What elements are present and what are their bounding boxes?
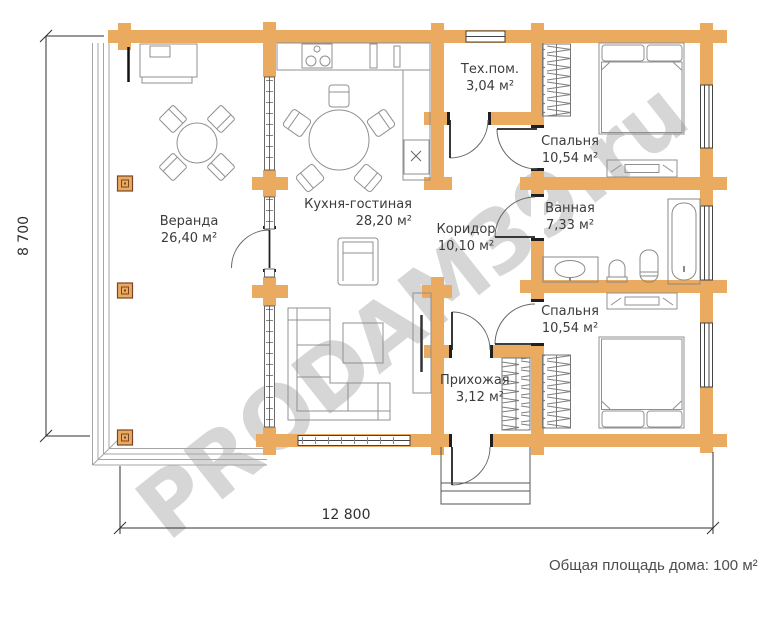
room-name: Веранда	[147, 213, 231, 230]
kitchen-furniture	[277, 43, 430, 193]
room-name: Ванная	[529, 200, 611, 217]
room-label-corridor: Коридор 10,10 м²	[425, 221, 507, 255]
toilet-icon	[607, 260, 627, 282]
porch	[441, 447, 530, 504]
living-furniture	[288, 238, 431, 420]
room-area: 10,54 м²	[529, 320, 611, 337]
dimension-height-label: 8 700	[16, 204, 32, 268]
room-area: 3,12 м²	[440, 389, 504, 406]
room-area: 28,20 м²	[300, 213, 412, 230]
room-area: 3,04 м²	[454, 78, 526, 95]
water-heater-icon	[640, 250, 658, 282]
room-name: Коридор	[425, 221, 507, 238]
room-label-hallway: Прихожая 3,12 м²	[440, 372, 504, 406]
stove-icon	[302, 44, 332, 68]
room-name: Кухня-гостиная	[300, 196, 412, 213]
room-label-veranda: Веранда 26,40 м²	[147, 213, 231, 247]
veranda-furniture	[129, 44, 236, 181]
room-name: Тех.пом.	[454, 61, 526, 78]
floor-plan-drawing	[0, 0, 775, 636]
veranda-deck	[93, 43, 268, 465]
room-name: Спальня	[529, 303, 611, 320]
room-label-bedroom-1: Спальня 10,54 м²	[529, 133, 611, 167]
room-name: Прихожая	[440, 372, 504, 389]
room-label-tech-room: Тех.пом. 3,04 м²	[454, 61, 526, 95]
total-area-note: Общая площадь дома: 100 м²	[549, 557, 758, 574]
doors	[232, 120, 538, 485]
room-label-bathroom: Ванная 7,33 м²	[529, 200, 611, 234]
tv-stand	[413, 293, 431, 393]
room-name: Спальня	[529, 133, 611, 150]
bathtub-icon	[668, 199, 700, 284]
floor-plan-canvas: PRODAM39.ru	[0, 0, 775, 636]
washbasin-icon	[543, 257, 598, 282]
hallway-closet	[502, 358, 530, 430]
room-area: 10,54 м²	[529, 150, 611, 167]
room-label-bedroom-2: Спальня 10,54 м²	[529, 303, 611, 337]
room-area: 10,10 м²	[425, 238, 507, 255]
veranda-posts	[118, 176, 133, 445]
room-area: 26,40 м²	[147, 230, 231, 247]
room-area: 7,33 м²	[529, 217, 611, 234]
sink-icon	[404, 140, 429, 174]
room-label-kitchen-living: Кухня-гостиная 28,20 м²	[300, 196, 412, 230]
dimension-width-label: 12 800	[314, 507, 378, 523]
